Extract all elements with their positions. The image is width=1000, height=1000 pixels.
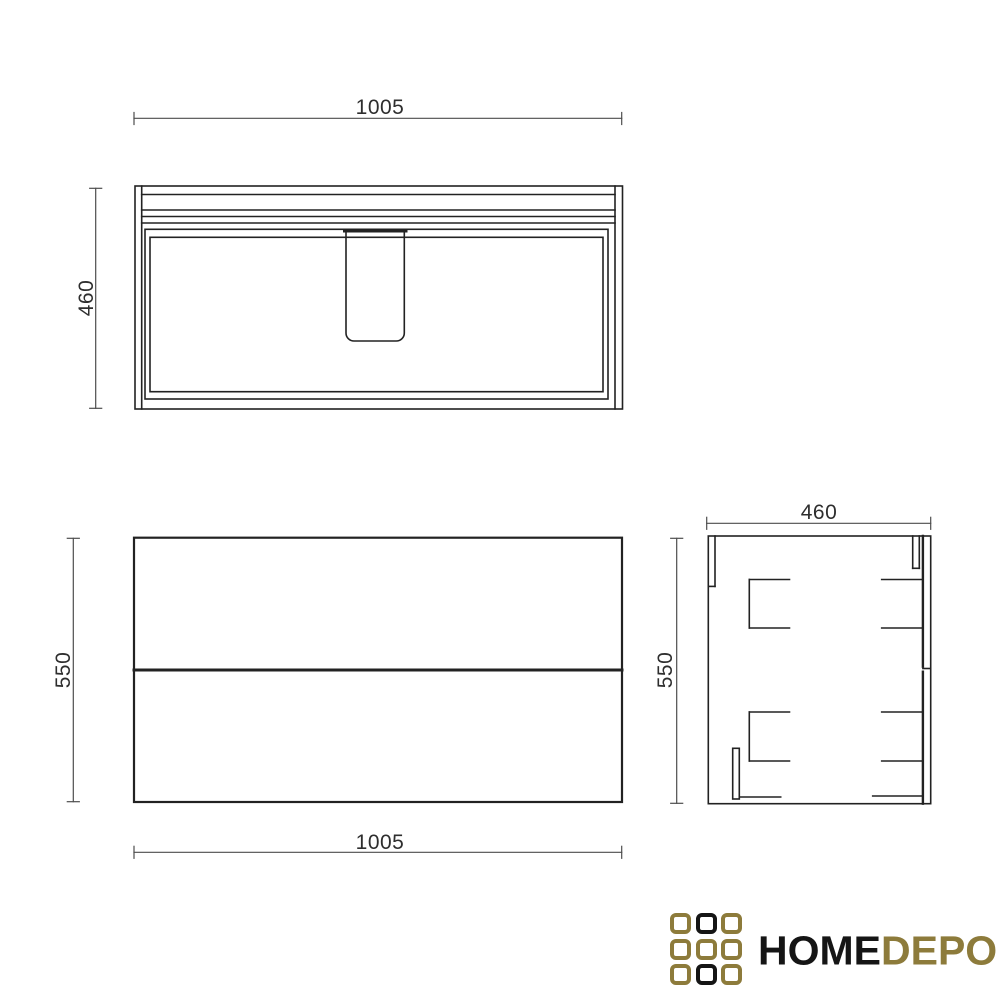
dim-front-view-width: 1005 [356, 831, 405, 855]
side-view-section [708, 536, 930, 804]
logo-square-black [696, 913, 717, 934]
logo-square-gold [696, 939, 717, 960]
front-view [134, 538, 622, 802]
logo-square-gold [721, 913, 742, 934]
brand-name-depo: DEPO [881, 928, 997, 974]
logo-square-gold [670, 964, 691, 985]
dim-side-view-height: 550 [654, 652, 678, 689]
logo-square-gold [721, 939, 742, 960]
drawing-svg [0, 0, 1000, 1000]
logo-square-gold [670, 913, 691, 934]
dim-front-view-height: 550 [52, 652, 76, 689]
dim-side-view-depth: 460 [801, 501, 838, 525]
logo-square-black [696, 964, 717, 985]
dim-top-view-width: 1005 [356, 96, 405, 120]
brand-name-home: HOME [758, 928, 881, 974]
logo-square-gold [670, 939, 691, 960]
top-view-plan [135, 186, 623, 409]
dim-top-view-depth: 460 [75, 280, 99, 317]
brand-logo: HOMEDEPO [670, 913, 742, 985]
technical-drawing-canvas: 1005 460 550 1005 550 460 HOMEDEPO [0, 0, 1000, 1000]
brand-name: HOMEDEPO [758, 928, 997, 975]
logo-square-gold [721, 964, 742, 985]
dimension-lines [67, 113, 930, 859]
logo-grid-icon [670, 913, 742, 985]
sink-cutout [346, 230, 404, 341]
